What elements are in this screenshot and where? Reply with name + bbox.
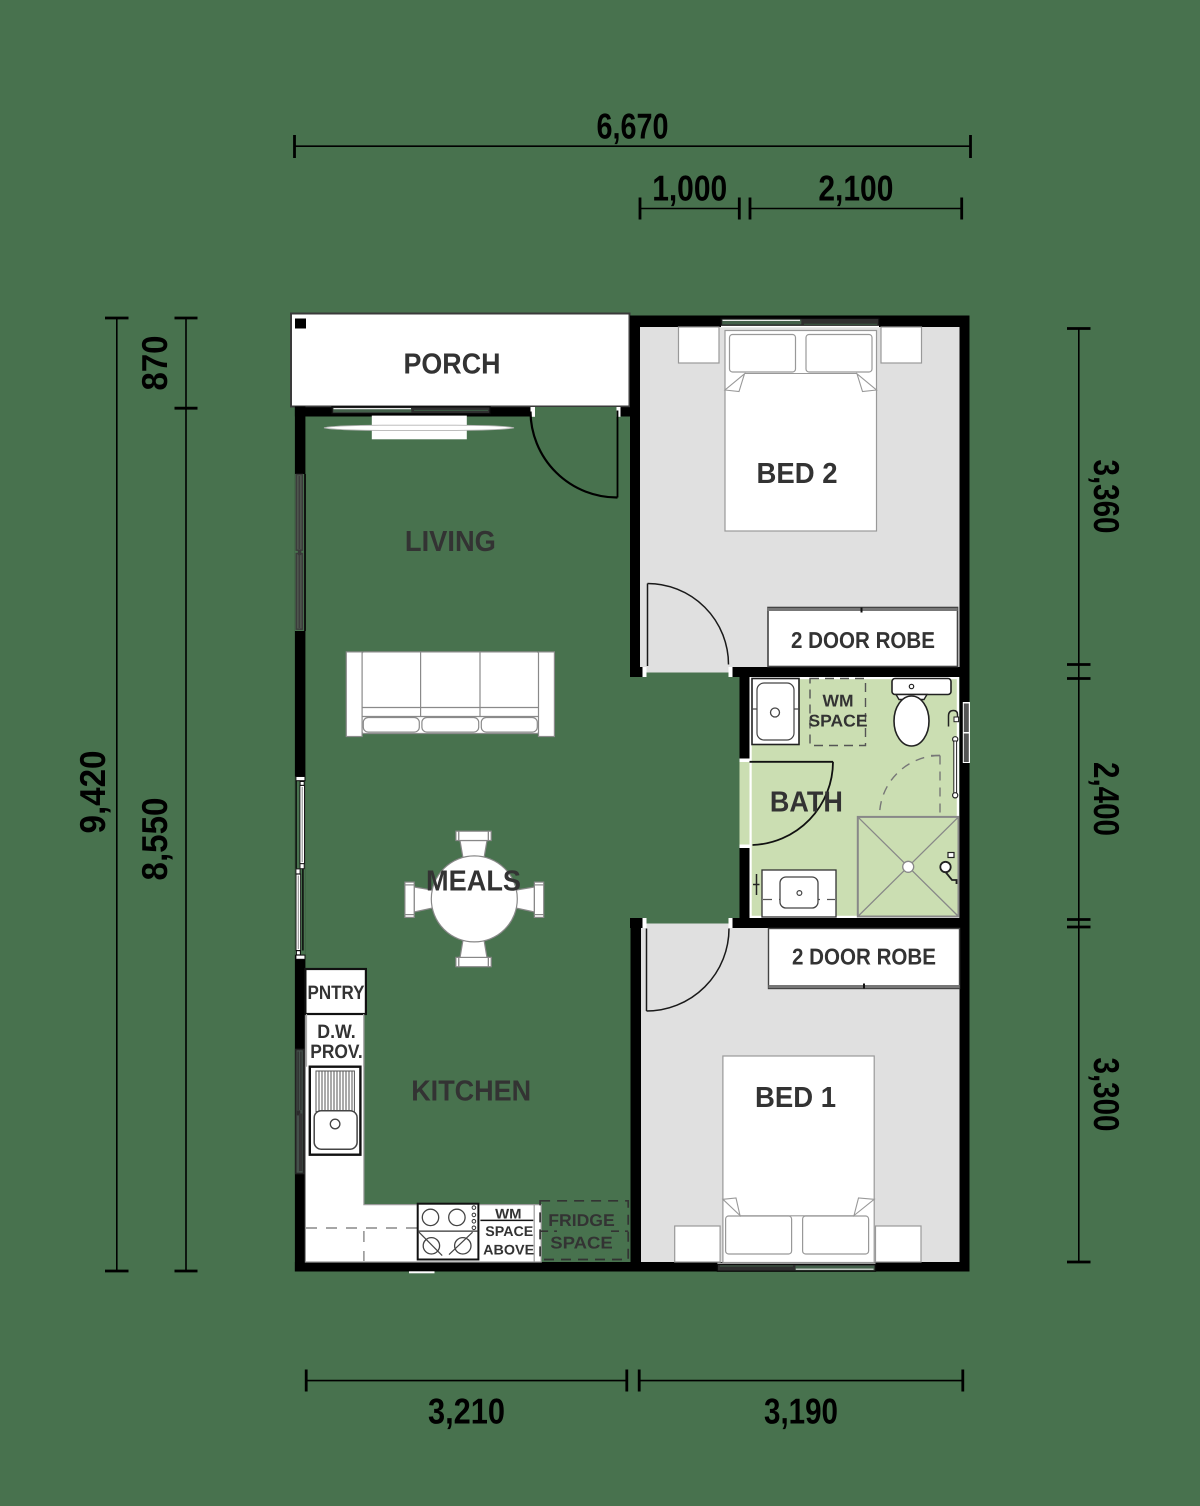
svg-text:KITCHEN: KITCHEN — [411, 1076, 531, 1108]
svg-text:WM: WM — [495, 1205, 521, 1221]
svg-text:PORCH: PORCH — [404, 349, 501, 381]
svg-text:PNTRY: PNTRY — [308, 982, 365, 1004]
svg-text:FRIDGE: FRIDGE — [548, 1211, 615, 1230]
svg-text:3,360: 3,360 — [1086, 460, 1127, 534]
svg-text:2 DOOR ROBE: 2 DOOR ROBE — [791, 627, 935, 653]
svg-text:BATH: BATH — [770, 787, 843, 819]
svg-text:D.W.: D.W. — [317, 1021, 356, 1043]
svg-text:MEALS: MEALS — [426, 866, 521, 898]
svg-text:SPACE: SPACE — [550, 1234, 613, 1253]
svg-text:PROV.: PROV. — [310, 1041, 363, 1063]
svg-text:9,420: 9,420 — [72, 751, 113, 834]
svg-text:3,210: 3,210 — [428, 1391, 505, 1432]
svg-text:1,000: 1,000 — [652, 168, 727, 209]
svg-text:2 DOOR ROBE: 2 DOOR ROBE — [792, 944, 936, 970]
svg-text:3,300: 3,300 — [1086, 1058, 1127, 1132]
svg-text:BED 1: BED 1 — [755, 1082, 836, 1114]
svg-text:8,550: 8,550 — [134, 798, 175, 881]
svg-text:SPACE: SPACE — [809, 712, 868, 731]
svg-text:6,670: 6,670 — [597, 105, 669, 146]
svg-text:LIVING: LIVING — [405, 526, 496, 558]
svg-text:ABOVE: ABOVE — [483, 1242, 534, 1258]
svg-text:2,400: 2,400 — [1086, 762, 1127, 836]
svg-text:WM: WM — [823, 692, 854, 711]
svg-text:2,100: 2,100 — [818, 168, 893, 209]
svg-text:870: 870 — [134, 336, 175, 391]
svg-text:SPACE: SPACE — [485, 1223, 533, 1239]
svg-text:3,190: 3,190 — [764, 1391, 838, 1432]
svg-text:BED 2: BED 2 — [757, 458, 838, 490]
